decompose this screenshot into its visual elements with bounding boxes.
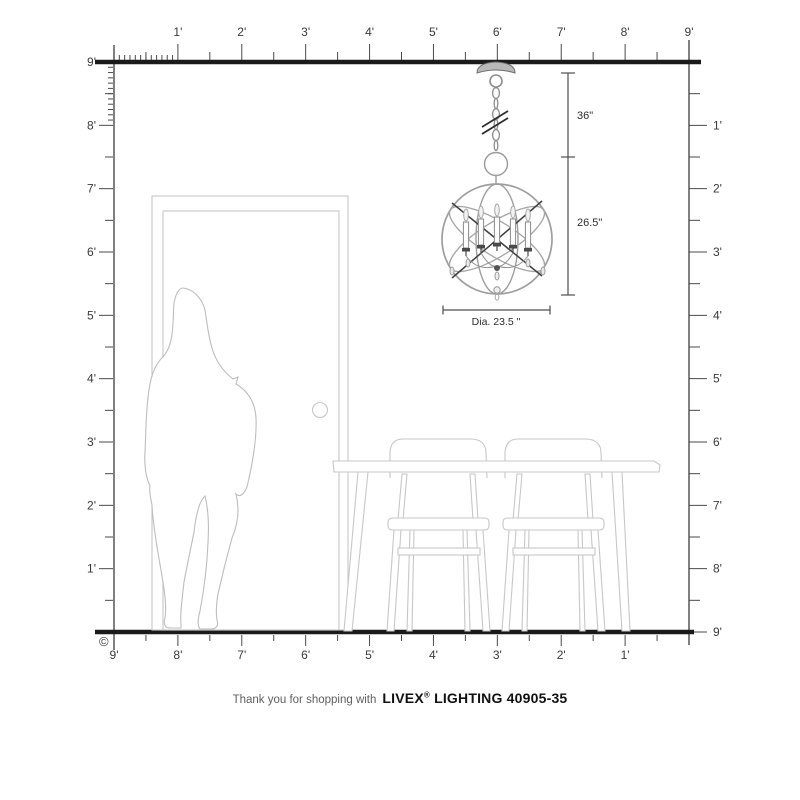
- ruler-label: 9': [87, 55, 96, 69]
- ruler-label: 4': [429, 648, 438, 662]
- ruler-label: 8': [87, 118, 96, 132]
- ruler-label: 9': [110, 648, 119, 662]
- ruler-label: 6': [493, 25, 502, 39]
- ruler-label: 8': [621, 25, 630, 39]
- ruler-label: 4': [713, 308, 722, 322]
- ruler-label: 2': [87, 498, 96, 512]
- scale-diagram-canvas: 1'2'3'4'5'6'7'8'9'9'8'7'6'5'4'3'2'1'1'2'…: [0, 0, 800, 800]
- chair-back-post-left: [398, 474, 407, 520]
- ruler-label: 8': [713, 562, 722, 576]
- chair-seat: [388, 518, 489, 530]
- chair-leg-back: [476, 530, 490, 631]
- fixture-height-label: 26.5": [577, 217, 602, 229]
- chain-length-label: 36": [577, 110, 593, 122]
- door-knob: [313, 403, 328, 418]
- chair-leg-inner-right: [463, 530, 470, 631]
- candle: [493, 204, 501, 251]
- ruler-label: 6': [301, 648, 310, 662]
- ruler-label: 7': [237, 648, 246, 662]
- ruler-label: 4': [87, 372, 96, 386]
- chain-break-marks: [482, 111, 508, 134]
- candles: [462, 204, 532, 256]
- ruler-label: 5': [365, 648, 374, 662]
- bottom-finial: [494, 287, 500, 293]
- ruler-label: 5': [713, 372, 722, 386]
- table-top: [333, 461, 660, 472]
- chain-loop: [490, 75, 502, 87]
- chandelier-drawing: [441, 62, 552, 300]
- ruler-label: 1': [173, 25, 182, 39]
- ruler-label: 7': [713, 498, 722, 512]
- chair-leg-front: [387, 530, 401, 631]
- ruler-label: 3': [87, 435, 96, 449]
- ruler-label: 3': [301, 25, 310, 39]
- footer-text: Thank you for shopping withLIVEX® LIGHTI…: [0, 690, 800, 708]
- ruler-label: 1': [621, 648, 630, 662]
- ruler-label: 2': [557, 648, 566, 662]
- ruler-label: 6': [713, 435, 722, 449]
- chair-back-post-right: [470, 474, 478, 520]
- ruler-label: 3': [493, 648, 502, 662]
- ruler-label: 7': [87, 182, 96, 196]
- center-ornament: [494, 265, 500, 271]
- brand-name: LIVEX: [382, 690, 423, 706]
- ruler-label: 3': [713, 245, 722, 259]
- product-dimension-diagram: 1'2'3'4'5'6'7'8'9'9'8'7'6'5'4'3'2'1'1'2'…: [0, 0, 800, 800]
- ruler-label: 1': [713, 118, 722, 132]
- chair-leg-inner-left: [407, 530, 414, 631]
- diameter-label: Dia. 23.5 ": [472, 316, 521, 328]
- footer-brand-text: LIVEX® LIGHTING 40905-35: [382, 690, 567, 706]
- ruler-label: 5': [87, 308, 96, 322]
- ruler-label: 1': [87, 562, 96, 576]
- ruler-label: 2': [713, 182, 722, 196]
- ruler-label: 5': [429, 25, 438, 39]
- footer-thanks-text: Thank you for shopping with: [233, 694, 377, 706]
- ruler-label: 4': [365, 25, 374, 39]
- ruler-label: 8': [173, 648, 182, 662]
- ruler-label: 6': [87, 245, 96, 259]
- center-drop-crystal: [495, 272, 499, 280]
- chair-stretcher: [398, 548, 480, 555]
- chandelier-ball-finial: [485, 153, 508, 176]
- brand-model: LIGHTING 40905-35: [430, 690, 567, 706]
- ruler-label: 7': [557, 25, 566, 39]
- ruler-label: 9': [713, 625, 722, 639]
- copyright-symbol: ©: [99, 634, 109, 649]
- ruler-label: 9': [685, 25, 694, 39]
- ruler-label: 2': [237, 25, 246, 39]
- table-leg-right: [612, 472, 630, 631]
- person-silhouette: [145, 288, 256, 629]
